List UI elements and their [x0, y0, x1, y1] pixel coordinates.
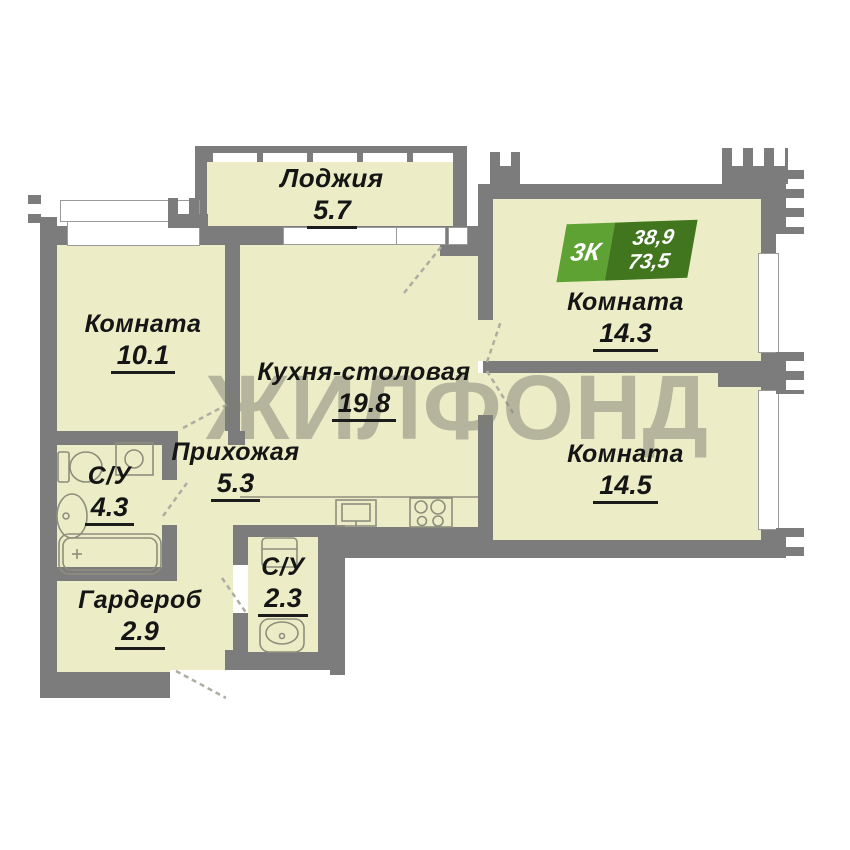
wall [195, 146, 467, 153]
neighbour-wall-stub [786, 170, 804, 234]
room-area: 5.3 [211, 468, 261, 502]
room-area: 4.3 [85, 492, 135, 526]
room-label-loggia: Лоджия 5.7 [232, 164, 432, 229]
room-name: Кухня-столовая [250, 358, 478, 386]
door-opening [478, 320, 493, 361]
room-name: Лоджия [232, 164, 432, 193]
badge-living-area: 38,9 [631, 225, 676, 251]
neighbour-wall-stub [28, 195, 41, 231]
window [758, 253, 779, 353]
room-area: 19.8 [332, 388, 397, 422]
neighbour-wall-stub [776, 352, 786, 394]
room-area: 2.9 [115, 616, 165, 650]
room-area: 14.5 [593, 470, 658, 504]
wall [225, 650, 248, 670]
room-name: С/У [246, 553, 320, 581]
wall [40, 567, 177, 581]
neighbour-wall-stub [490, 166, 520, 184]
neighbour-wall-stub [168, 214, 208, 228]
entrance-door-opening [170, 670, 330, 698]
room-label-hallway: Прихожая 5.3 [158, 438, 313, 502]
room-name: Комната [538, 440, 713, 468]
room-label-wardrobe: Гардероб 2.9 [50, 586, 230, 650]
balcony-door [396, 227, 446, 245]
room-label-room-10: Комната 10.1 [57, 310, 229, 374]
room-label-room-143: Комната 14.3 [538, 288, 713, 352]
room-label-bathroom-23: С/У 2.3 [246, 553, 320, 617]
room-name: Прихожая [158, 438, 313, 466]
neighbour-wall-stub [786, 528, 804, 558]
apartment-badge: 3К 38,9 73,5 [556, 220, 697, 283]
floor-plan: ЖИЛФОНД Лоджия 5.7 Комната 10.1 Кухня-ст… [0, 0, 850, 850]
room-name: Комната [538, 288, 713, 316]
room-name: С/У [62, 462, 157, 490]
wall [478, 184, 776, 199]
room-label-bathroom-43: С/У 4.3 [62, 462, 157, 526]
neighbour-wall-stub [722, 148, 788, 166]
room-label-kitchen: Кухня-столовая 19.8 [250, 358, 478, 422]
neighbour-wall-stub [786, 352, 804, 394]
wall [233, 652, 345, 670]
badge-total-area: 73,5 [626, 249, 671, 275]
room-area: 10.1 [111, 340, 176, 374]
room-area: 2.3 [258, 583, 308, 617]
badge-areas: 38,9 73,5 [605, 220, 698, 281]
neighbour-wall-stub [490, 152, 520, 166]
room-name: Гардероб [50, 586, 230, 614]
loggia-rail-ticks [207, 153, 453, 162]
neighbour-wall-stub [776, 528, 786, 558]
wall [40, 672, 170, 698]
room-area: 14.3 [593, 318, 658, 352]
window [283, 227, 398, 245]
room-area: 5.7 [307, 195, 357, 229]
room-name: Комната [57, 310, 229, 338]
wall [478, 199, 493, 320]
wall [162, 525, 177, 570]
neighbour-wall-stub [168, 198, 208, 214]
wall [345, 527, 480, 558]
wall [453, 146, 467, 234]
wall [718, 361, 761, 387]
window [448, 227, 468, 245]
room-label-room-145: Комната 14.5 [538, 440, 713, 504]
neighbour-wall-stub [776, 170, 786, 234]
wall [478, 540, 776, 558]
window [758, 390, 779, 530]
